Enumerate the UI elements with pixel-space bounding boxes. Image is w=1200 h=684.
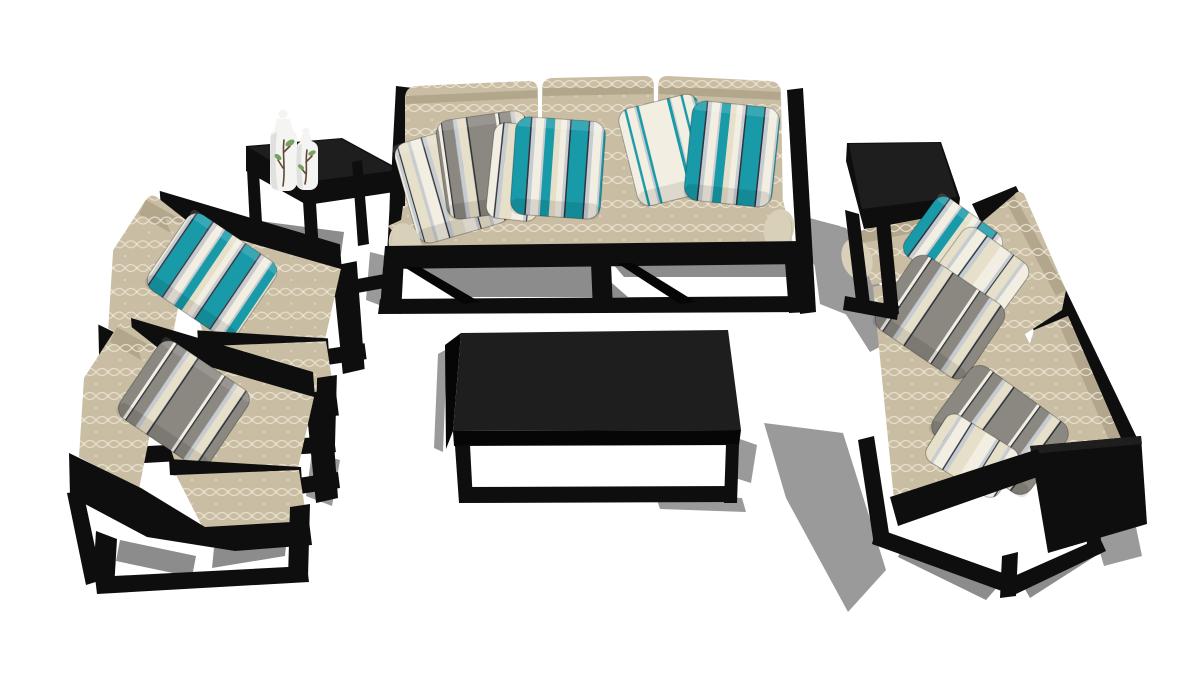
coffee-table-bottom-rail: [459, 486, 737, 503]
striped-pillow-teal-left: [510, 116, 607, 220]
loveseat-leg-right: [1086, 516, 1102, 558]
vase-large-knob: [279, 110, 288, 119]
render-canvas: 3D render of a modern black metal-frame …: [0, 0, 1200, 684]
loveseat-leg-front: [1000, 552, 1018, 598]
coffee-table-top: [453, 330, 741, 431]
vase-small-knob: [303, 128, 310, 135]
furniture-set-render: 3D render of a modern black metal-frame …: [0, 0, 1200, 684]
striped-pillow-teal-right: [683, 100, 781, 209]
coffee-table-front-slab: [453, 430, 741, 446]
sofa-bottom-rail: [378, 296, 813, 314]
